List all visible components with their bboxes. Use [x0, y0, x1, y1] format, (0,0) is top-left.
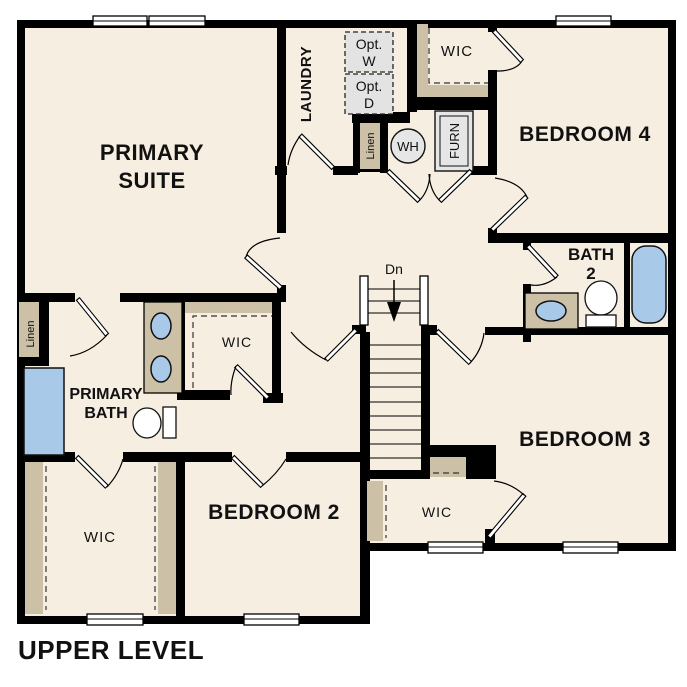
primary-shower [24, 368, 64, 455]
bedroom4-label: BEDROOM 4 [519, 123, 651, 146]
stair-down-label: Dn [385, 261, 403, 277]
linen-hall-label: Linen [365, 133, 377, 160]
water-heater-label: WH [397, 139, 419, 154]
bath2-sink [536, 301, 566, 321]
primary-toilet-bowl [133, 408, 161, 438]
vanity-sink-2 [151, 356, 171, 382]
wic-top-label: WIC [441, 43, 473, 60]
wic-mid-label: WIC [222, 334, 252, 350]
stair-rail-right [420, 276, 428, 325]
wic-lr-shelf [367, 481, 383, 541]
bedroom2-label: BEDROOM 2 [208, 501, 340, 524]
floor-plan: PRIMARYSUITE LAUNDRY Opt.W Opt.D WIC BED… [0, 0, 687, 687]
furnace-label: FURN [447, 123, 462, 159]
wic-lower-right-label: WIC [422, 504, 452, 520]
stair-rail-left [360, 276, 368, 325]
vanity-sink-1 [151, 313, 171, 339]
laundry-label: LAUNDRY [298, 46, 315, 122]
linen-left-label: Linen [25, 321, 37, 348]
wic-mid-shelf [185, 302, 272, 313]
bath2-tub [632, 246, 666, 323]
page-title: UPPER LEVEL [18, 635, 204, 665]
wic-ll-shelf-left [25, 462, 43, 614]
hall-closet-shelf [430, 457, 466, 477]
wic-top-shelf-bottom [417, 85, 488, 97]
primary-toilet-tank [163, 407, 176, 438]
bedroom3-label: BEDROOM 3 [519, 428, 651, 451]
bath2-toilet-tank [586, 315, 616, 327]
bath2-toilet-bowl [585, 281, 617, 315]
wic-lower-left-label: WIC [84, 529, 116, 546]
floor-plan-svg: PRIMARYSUITE LAUNDRY Opt.W Opt.D WIC BED… [0, 0, 687, 687]
wic-ll-shelf-right [158, 462, 176, 614]
